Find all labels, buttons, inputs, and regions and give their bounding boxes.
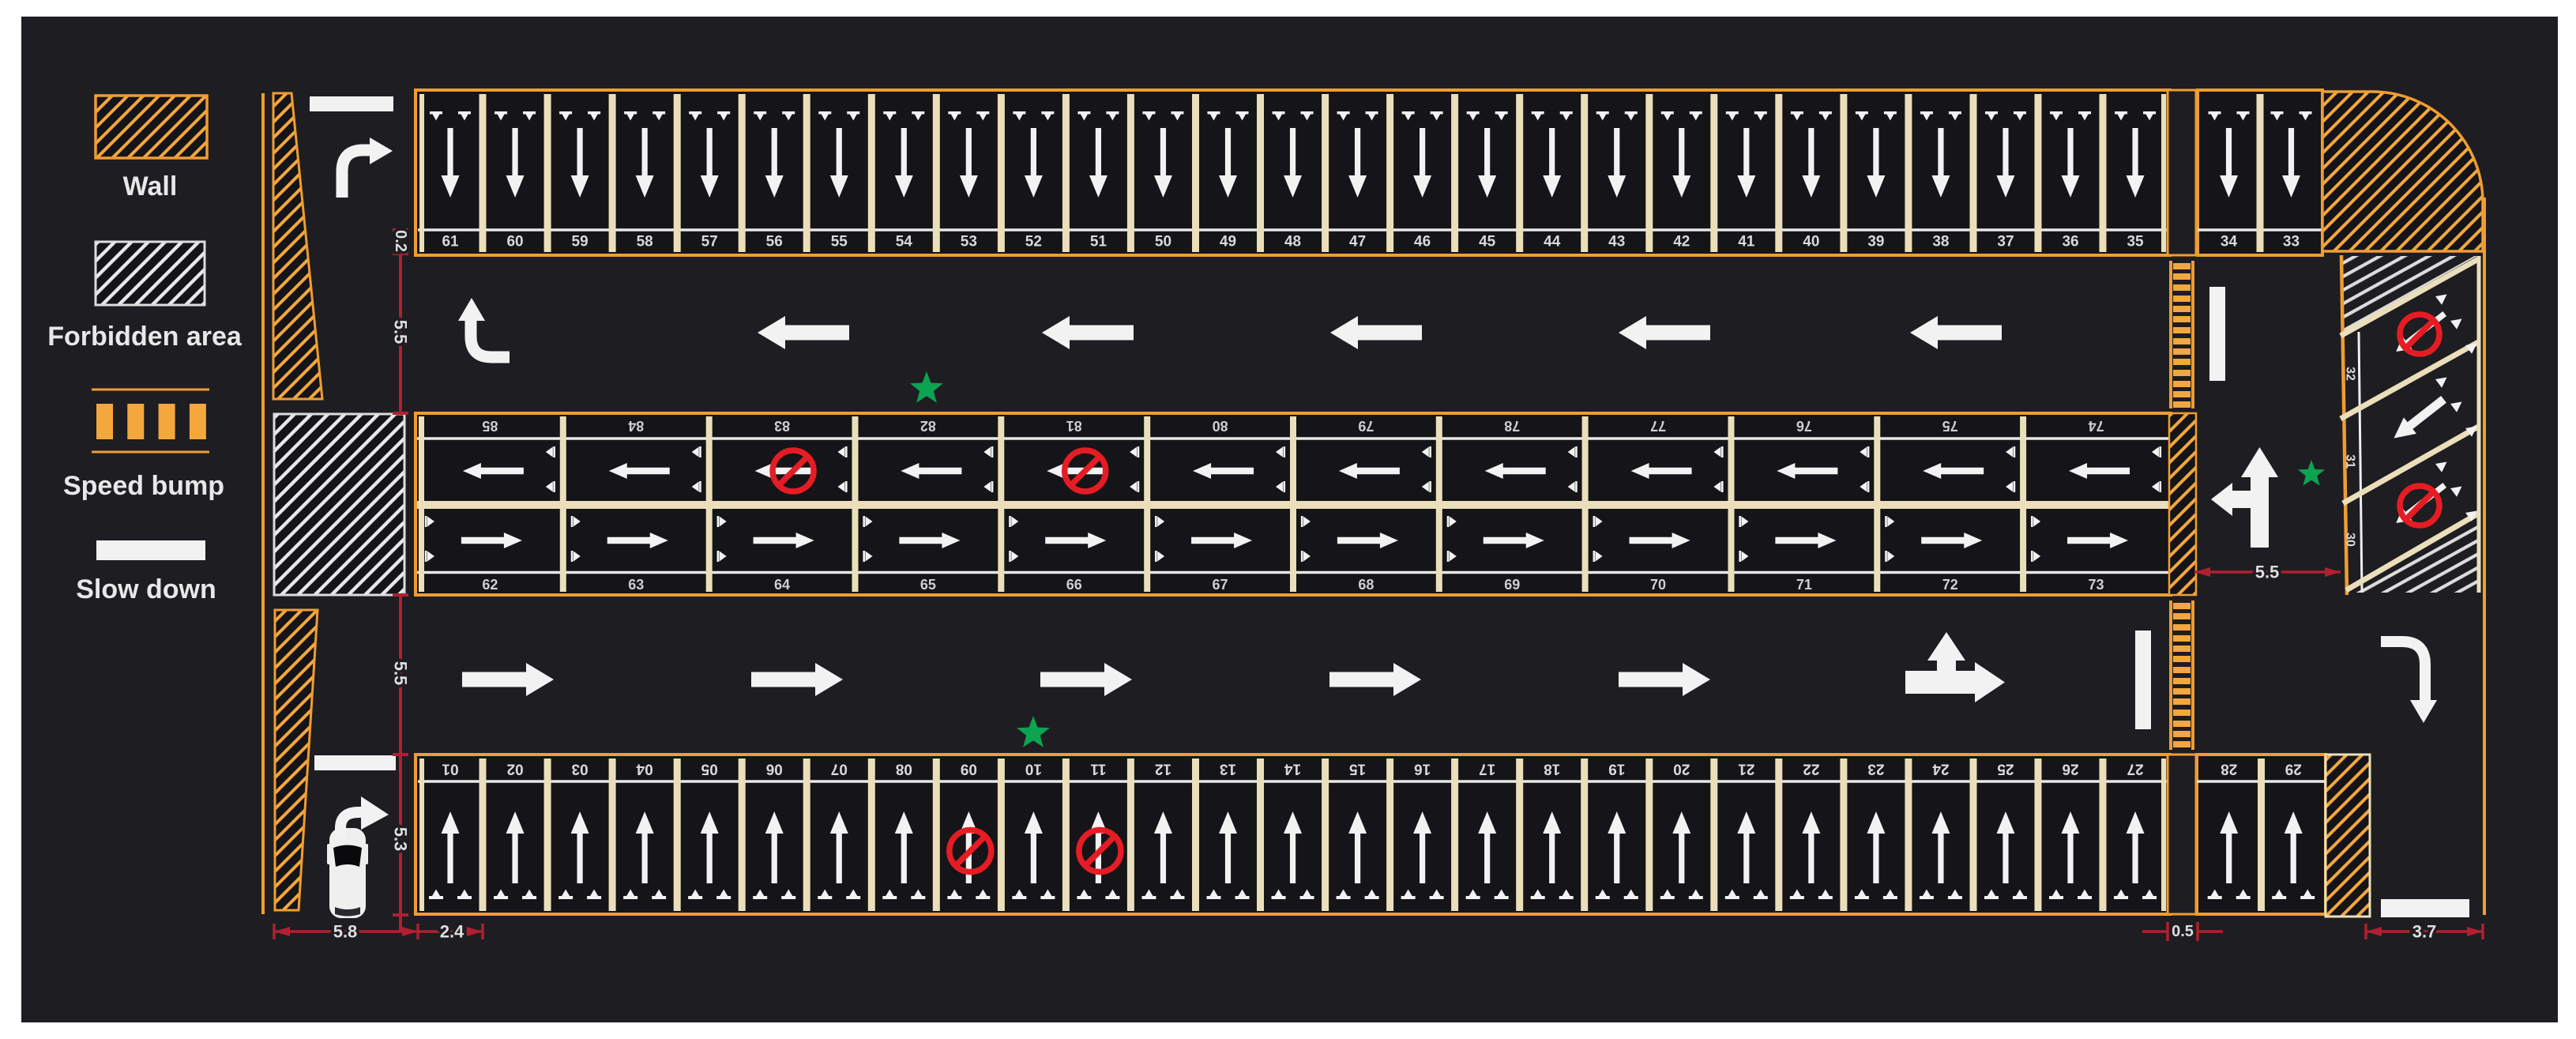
svg-text:08: 08 (896, 761, 912, 777)
svg-text:18: 18 (1544, 761, 1560, 777)
svg-text:63: 63 (628, 577, 644, 593)
svg-text:51: 51 (1090, 234, 1107, 250)
svg-text:10: 10 (1025, 761, 1042, 777)
svg-text:07: 07 (831, 761, 848, 777)
svg-text:80: 80 (1213, 418, 1228, 434)
svg-text:37: 37 (1997, 234, 2014, 250)
svg-text:21: 21 (1738, 761, 1755, 777)
svg-text:13: 13 (1220, 761, 1236, 777)
svg-text:75: 75 (1942, 418, 1958, 434)
svg-text:44: 44 (1544, 234, 1561, 250)
svg-text:38: 38 (1932, 234, 1949, 250)
svg-text:Slow down: Slow down (76, 574, 216, 604)
svg-text:55: 55 (831, 234, 848, 250)
svg-text:78: 78 (1504, 418, 1520, 434)
svg-text:23: 23 (1867, 761, 1884, 777)
svg-text:3.7: 3.7 (2412, 922, 2437, 942)
svg-text:2.4: 2.4 (440, 922, 464, 942)
svg-text:73: 73 (2089, 577, 2104, 593)
svg-text:12: 12 (1155, 761, 1171, 777)
svg-text:67: 67 (1213, 577, 1228, 593)
svg-text:33: 33 (2283, 234, 2300, 250)
svg-text:09: 09 (961, 761, 977, 777)
svg-text:20: 20 (1673, 761, 1690, 777)
svg-text:60: 60 (506, 234, 523, 250)
svg-text:01: 01 (442, 761, 459, 777)
svg-text:Forbidden area: Forbidden area (47, 322, 243, 352)
svg-text:61: 61 (442, 234, 459, 250)
svg-text:19: 19 (1608, 761, 1625, 777)
svg-text:31: 31 (2344, 454, 2357, 469)
svg-text:32: 32 (2344, 367, 2357, 381)
svg-text:45: 45 (1479, 234, 1496, 250)
svg-text:30: 30 (2344, 533, 2357, 547)
svg-text:76: 76 (1796, 418, 1812, 434)
svg-text:34: 34 (2221, 234, 2238, 250)
svg-text:16: 16 (1414, 761, 1431, 777)
svg-text:11: 11 (1090, 761, 1107, 777)
svg-text:58: 58 (637, 234, 653, 250)
svg-text:41: 41 (1738, 234, 1755, 250)
svg-text:46: 46 (1414, 234, 1431, 250)
svg-text:79: 79 (1358, 418, 1374, 434)
svg-text:54: 54 (896, 234, 913, 250)
svg-text:74: 74 (2089, 418, 2104, 434)
svg-text:25: 25 (1997, 761, 2014, 777)
svg-text:40: 40 (1803, 234, 1819, 250)
svg-text:49: 49 (1220, 234, 1236, 250)
svg-text:39: 39 (1867, 234, 1884, 250)
svg-text:62: 62 (482, 577, 498, 593)
svg-text:29: 29 (2285, 761, 2302, 777)
svg-text:83: 83 (774, 418, 790, 434)
svg-text:72: 72 (1942, 577, 1958, 593)
svg-text:35: 35 (2127, 234, 2144, 250)
svg-text:68: 68 (1358, 577, 1374, 593)
svg-text:66: 66 (1066, 577, 1082, 593)
svg-text:5.5: 5.5 (391, 661, 411, 686)
svg-text:42: 42 (1673, 234, 1690, 250)
svg-text:15: 15 (1349, 761, 1367, 777)
svg-text:Speed bump: Speed bump (63, 471, 224, 501)
svg-text:05: 05 (701, 761, 718, 777)
svg-text:84: 84 (628, 418, 644, 434)
svg-text:02: 02 (506, 761, 523, 777)
svg-text:17: 17 (1479, 761, 1495, 777)
svg-text:85: 85 (482, 418, 498, 434)
svg-text:48: 48 (1284, 234, 1301, 250)
svg-text:77: 77 (1650, 418, 1666, 434)
svg-text:53: 53 (961, 234, 977, 250)
svg-text:71: 71 (1796, 577, 1812, 593)
svg-text:03: 03 (572, 761, 589, 777)
svg-text:64: 64 (774, 577, 790, 593)
svg-text:43: 43 (1608, 234, 1625, 250)
svg-text:5.5: 5.5 (391, 320, 411, 344)
svg-text:81: 81 (1066, 418, 1082, 434)
svg-text:5.8: 5.8 (333, 922, 358, 942)
svg-text:59: 59 (572, 234, 589, 250)
svg-text:36: 36 (2062, 234, 2078, 250)
svg-text:14: 14 (1284, 761, 1302, 777)
svg-text:0.5: 0.5 (2172, 923, 2194, 940)
svg-text:27: 27 (2127, 761, 2143, 777)
svg-text:50: 50 (1155, 234, 1171, 250)
svg-text:22: 22 (1803, 761, 1819, 777)
svg-text:56: 56 (766, 234, 783, 250)
svg-text:65: 65 (920, 577, 936, 593)
svg-text:28: 28 (2221, 761, 2237, 777)
svg-text:52: 52 (1025, 234, 1042, 250)
svg-text:70: 70 (1650, 577, 1666, 593)
svg-text:5.3: 5.3 (391, 827, 411, 852)
svg-text:57: 57 (701, 234, 718, 250)
svg-text:24: 24 (1932, 761, 1950, 777)
svg-text:47: 47 (1349, 234, 1366, 250)
svg-text:69: 69 (1504, 577, 1520, 593)
svg-text:Wall: Wall (123, 171, 178, 201)
svg-text:04: 04 (636, 761, 653, 777)
svg-text:06: 06 (766, 761, 783, 777)
svg-text:26: 26 (2062, 761, 2078, 777)
svg-text:0.2: 0.2 (392, 230, 409, 252)
svg-text:5.5: 5.5 (2255, 563, 2280, 582)
svg-text:82: 82 (920, 418, 936, 434)
